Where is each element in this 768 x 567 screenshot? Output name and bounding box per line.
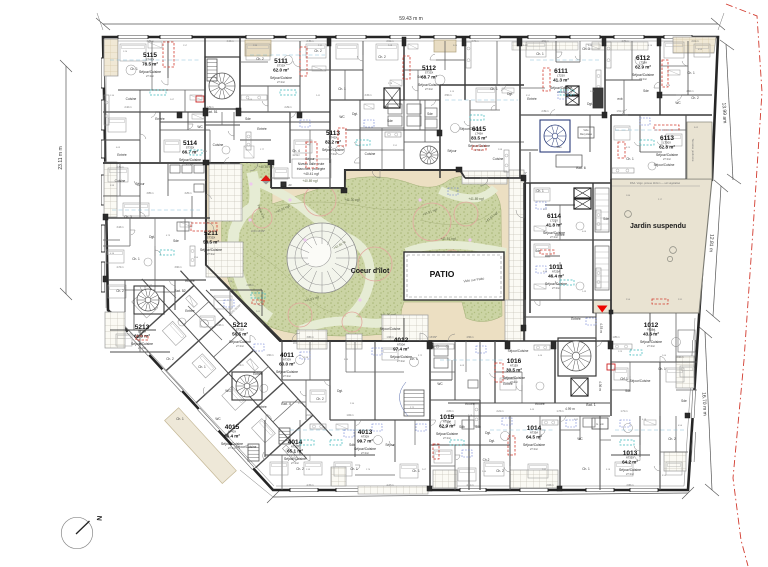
svg-text:Séjour: Séjour (447, 149, 457, 153)
svg-text:60.0 m²: 60.0 m² (279, 362, 295, 367)
svg-text:4.15 m: 4.15 m (306, 485, 313, 487)
svg-text:4.76 m: 4.76 m (621, 41, 628, 43)
svg-text:82.2 m²: 82.2 m² (325, 140, 341, 145)
svg-text:2.21 m: 2.21 m (496, 411, 503, 413)
svg-text:1.68 m: 1.68 m (216, 325, 223, 327)
svg-text:Sas: Sas (556, 145, 562, 149)
svg-text:Séjour: Séjour (385, 443, 395, 447)
svg-text:27.3m²: 27.3m² (207, 252, 215, 256)
svg-text:Séjour/Cuisine: Séjour/Cuisine (354, 447, 376, 451)
svg-text:30.5 m²: 30.5 m² (506, 368, 522, 373)
svg-text:Sdb: Sdb (475, 425, 481, 429)
svg-text:41.8 m²: 41.8 m² (546, 223, 562, 228)
svg-text:2.29 m: 2.29 m (284, 107, 291, 109)
svg-text:Ch. 1: Ch. 1 (658, 367, 666, 371)
svg-text:Sde: Sde (173, 239, 179, 243)
svg-text:Ch. 1: Ch. 1 (582, 467, 590, 471)
svg-text:Vide: Vide (583, 128, 589, 132)
svg-text:Entrée: Entrée (527, 97, 537, 101)
svg-text:2.05 m: 2.05 m (446, 411, 453, 413)
svg-text:Entrée: Entrée (155, 117, 165, 121)
svg-text:62.9 m²: 62.9 m² (439, 424, 455, 429)
svg-text:4.56 m: 4.56 m (466, 337, 473, 339)
svg-text:59.43 m m: 59.43 m m (399, 16, 423, 22)
svg-text:WC: WC (215, 417, 221, 421)
svg-text:Ch. 1: Ch. 1 (626, 157, 634, 161)
svg-text:27.3m²: 27.3m² (663, 157, 671, 161)
svg-text:3.60 m: 3.60 m (174, 267, 181, 269)
svg-text:Bat. 6: Bat. 6 (576, 166, 585, 170)
svg-text:Séjour/Cuisine: Séjour/Cuisine (656, 153, 678, 157)
svg-text:+41.51 ngf: +41.51 ngf (440, 237, 455, 241)
svg-text:Séjour/Cuisine: Séjour/Cuisine (640, 340, 662, 344)
svg-text:Dgt.: Dgt. (383, 105, 389, 109)
svg-text:46.4 m²: 46.4 m² (548, 274, 564, 279)
svg-text:Ch. 1: Ch. 1 (536, 189, 544, 193)
svg-text:Ch. 1: Ch. 1 (410, 357, 418, 361)
svg-text:86.4 m²: 86.4 m² (224, 434, 240, 439)
svg-text:WC: WC (339, 115, 345, 119)
svg-text:2.74 m: 2.74 m (236, 365, 243, 367)
svg-text:Séjour/Cuisine: Séjour/Cuisine (508, 349, 529, 353)
svg-text:3.80 m: 3.80 m (306, 337, 313, 339)
svg-text:+40.89 ngf: +40.89 ngf (302, 179, 317, 183)
svg-text:27.3m²: 27.3m² (138, 346, 146, 350)
svg-text:Dgt.: Dgt. (489, 439, 495, 443)
svg-text:Ch. 1: Ch. 1 (490, 87, 498, 91)
svg-text:Entrée: Entrée (257, 127, 267, 131)
svg-text:+41.89 ngf: +41.89 ngf (468, 197, 483, 201)
svg-text:Cuisine: Cuisine (213, 143, 224, 147)
svg-text:4.44 m: 4.44 m (226, 41, 233, 43)
svg-text:Séjour/Cuisine: Séjour/Cuisine (460, 127, 481, 131)
svg-text:3.50 m: 3.50 m (444, 95, 451, 97)
svg-text:1.50 m: 1.50 m (266, 355, 273, 357)
svg-text:2.45 m: 2.45 m (306, 41, 313, 43)
svg-text:Jardin suspendu: Jardin suspendu (630, 223, 686, 230)
svg-text:1.84 m: 1.84 m (346, 415, 353, 417)
svg-text:Dgt.: Dgt. (507, 92, 513, 96)
svg-text:2.10 m: 2.10 m (124, 107, 131, 109)
svg-text:64.2 m²: 64.2 m² (622, 460, 638, 465)
svg-text:Dgt.: Dgt. (149, 235, 155, 239)
svg-text:Séjour/Cuisine: Séjour/Cuisine (270, 76, 292, 80)
svg-text:Ch. 2: Ch. 2 (691, 96, 699, 100)
svg-text:3.43 m: 3.43 m (116, 227, 123, 229)
svg-text:Sde: Sde (643, 89, 649, 93)
svg-text:Bat. 1: Bat. 1 (586, 403, 595, 407)
svg-text:WC: WC (437, 382, 443, 386)
svg-text:1.85 m: 1.85 m (612, 337, 619, 339)
svg-text:Séjour/Cuisine: Séjour/Cuisine (200, 248, 222, 252)
svg-text:Sde: Sde (625, 389, 631, 393)
svg-text:Séjour/Cuisine: Séjour/Cuisine (131, 342, 153, 346)
svg-text:1.73 m: 1.73 m (556, 411, 563, 413)
svg-text:evb: evb (617, 97, 622, 101)
svg-text:Bat. 52: Bat. 52 (174, 289, 185, 293)
svg-text:Ch. 2: Ch. 2 (378, 55, 386, 59)
svg-text:27.3m²: 27.3m² (361, 451, 369, 455)
svg-text:4.21 m: 4.21 m (466, 485, 473, 487)
svg-text:Cuisine: Cuisine (126, 97, 137, 101)
svg-text:16.70 m m: 16.70 m m (700, 392, 707, 416)
svg-text:27.3m²: 27.3m² (530, 447, 538, 451)
svg-text:Séjour/Cuisine: Séjour/Cuisine (436, 432, 458, 436)
svg-text:Terrasse jardinière: Terrasse jardinière (691, 138, 695, 161)
svg-text:Ch. 1: Ch. 1 (338, 87, 346, 91)
svg-text:Sdb: Sdb (459, 425, 465, 429)
svg-text:RSA. Végé. prévue 110cm — sol: RSA. Végé. prévue 110cm — sol végétalisé (630, 181, 681, 185)
svg-text:27.3m²: 27.3m² (329, 152, 337, 156)
svg-text:Séjour/Cuisine: Séjour/Cuisine (523, 443, 545, 447)
svg-text:Ch. 3: Ch. 3 (124, 215, 132, 219)
svg-text:Séjour/Cuisine: Séjour/Cuisine (236, 445, 257, 449)
svg-text:62.0 m²: 62.0 m² (273, 68, 289, 73)
svg-text:Recyclerie: Recyclerie (580, 132, 593, 136)
svg-text:étanchée, protégée: étanchée, protégée (297, 167, 326, 171)
svg-text:68.7 m²: 68.7 m² (421, 75, 437, 80)
svg-text:JON 16'09*: JON 16'09* (251, 229, 266, 233)
svg-text:Ch. 1: Ch. 1 (132, 257, 140, 261)
svg-text:Entrée: Entrée (571, 317, 581, 321)
svg-text:WC: WC (197, 125, 203, 129)
svg-text:Séjour/Cuisine: Séjour/Cuisine (380, 327, 401, 331)
svg-text:Ch.2: Ch.2 (483, 458, 490, 462)
svg-text:Entrée: Entrée (253, 372, 263, 376)
svg-text:Sde: Sde (387, 119, 393, 123)
svg-text:N: N (95, 515, 102, 521)
svg-text:Ch. 2: Ch. 2 (316, 397, 324, 401)
svg-text:Dgt.: Dgt. (337, 389, 343, 393)
svg-text:Entrée: Entrée (555, 233, 565, 237)
svg-text:43.6 m²: 43.6 m² (643, 332, 659, 337)
svg-text:2.86 m: 2.86 m (626, 485, 633, 487)
svg-text:4.99 m: 4.99 m (565, 407, 575, 411)
svg-text:PATIO: PATIO (430, 269, 455, 279)
svg-text:64.5 m²: 64.5 m² (526, 435, 542, 440)
svg-text:4.47 m: 4.47 m (386, 485, 393, 487)
svg-text:Cuisine: Cuisine (365, 152, 376, 156)
svg-text:12.81 m: 12.81 m (708, 234, 715, 252)
svg-text:WC: WC (225, 389, 231, 393)
svg-text:3.15 m: 3.15 m (364, 95, 371, 97)
svg-text:13.99 am: 13.99 am (720, 102, 727, 123)
svg-text:4.53 m: 4.53 m (599, 323, 603, 333)
svg-text:Dgt.: Dgt. (587, 102, 593, 106)
svg-text:2.72 m: 2.72 m (471, 41, 478, 43)
svg-text:1.71 m: 1.71 m (620, 411, 627, 413)
svg-text:Entrée: Entrée (257, 405, 267, 409)
svg-text:2.76 m: 2.76 m (116, 167, 123, 169)
svg-text:Dgt.: Dgt. (352, 112, 358, 116)
svg-text:27.3m²: 27.3m² (639, 77, 647, 81)
svg-text:Dgt.: Dgt. (485, 431, 491, 435)
svg-text:Ch. 1: Ch. 1 (687, 71, 695, 75)
svg-text:+41.30 ngf: +41.30 ngf (344, 198, 359, 202)
svg-text:Ch. 4: Ch. 4 (292, 149, 300, 153)
svg-text:Sde: Sde (603, 217, 609, 221)
svg-text:Séjour/Cuisine: Séjour/Cuisine (284, 457, 306, 461)
svg-text:41.3 m²: 41.3 m² (553, 78, 569, 83)
svg-text:Ch. 1: Ch. 1 (176, 417, 184, 421)
svg-text:3.25 m: 3.25 m (184, 193, 191, 195)
svg-text:4.51 m: 4.51 m (541, 41, 548, 43)
svg-text:23.11 m m: 23.11 m m (58, 146, 64, 169)
svg-text:Séjour/Cuisine: Séjour/Cuisine (139, 70, 161, 74)
svg-text:Ch. 2: Ch. 2 (166, 357, 174, 361)
svg-text:27.3m²: 27.3m² (647, 344, 655, 348)
svg-text:Bat. 4: Bat. 4 (281, 402, 290, 406)
svg-text:Niveau dalle brute: Niveau dalle brute (298, 162, 325, 166)
svg-text:Ch. 1: Ch. 1 (350, 467, 358, 471)
svg-text:2.92 m: 2.92 m (686, 91, 693, 93)
svg-text:Séjour/Cuisine: Séjour/Cuisine (632, 73, 654, 77)
svg-text:Séjour/Cuisine: Séjour/Cuisine (229, 340, 251, 344)
svg-text:Séjour/Cuisine: Séjour/Cuisine (468, 144, 490, 148)
svg-text:Ch. 1: Ch. 1 (198, 365, 206, 369)
svg-text:83.5 m²: 83.5 m² (471, 136, 487, 141)
svg-text:Séjour/Cuisine: Séjour/Cuisine (276, 370, 298, 374)
svg-text:Séjour: Séjour (305, 157, 315, 161)
svg-text:Coeur d'îlot: Coeur d'îlot (351, 268, 390, 275)
svg-text:3.85 m: 3.85 m (146, 193, 153, 195)
svg-text:Sde: Sde (427, 112, 433, 116)
svg-text:27.3m²: 27.3m² (626, 472, 634, 476)
svg-text:2.01 m: 2.01 m (306, 415, 313, 417)
svg-text:Entrée: Entrée (185, 279, 195, 283)
svg-text:27.3m²: 27.3m² (443, 436, 451, 440)
svg-text:Séjour/Cuisine: Séjour/Cuisine (545, 282, 567, 286)
svg-text:1.51 m: 1.51 m (616, 111, 623, 113)
svg-text:Sde: Sde (681, 399, 687, 403)
svg-text:65.1 m²: 65.1 m² (287, 449, 303, 454)
svg-text:Ch. 2: Ch. 2 (116, 289, 124, 293)
svg-text:Entrée: Entrée (465, 402, 475, 406)
svg-text:Séjour/Cuisine: Séjour/Cuisine (179, 158, 201, 162)
svg-text:Séjour/Cuisine: Séjour/Cuisine (550, 86, 572, 90)
svg-text:Ch. 2: Ch. 2 (256, 57, 264, 61)
svg-text:62.8 m²: 62.8 m² (659, 145, 675, 150)
svg-text:Séjour/Cuisine: Séjour/Cuisine (322, 148, 344, 152)
svg-text:Ch. 2: Ch. 2 (668, 437, 676, 441)
svg-text:Ch. 1: Ch. 1 (412, 469, 420, 473)
svg-text:Ch. 1: Ch. 1 (620, 377, 628, 381)
svg-text:+40.41 ngf: +40.41 ngf (303, 172, 319, 176)
svg-text:Séjour/Cuisine: Séjour/Cuisine (390, 355, 412, 359)
svg-text:Séjour/Cuisine: Séjour/Cuisine (503, 376, 525, 380)
svg-text:Entrée: Entrée (535, 402, 545, 406)
svg-text:Entrée: Entrée (503, 382, 513, 386)
svg-text:WC: WC (577, 437, 583, 441)
svg-text:78.5 m²: 78.5 m² (142, 62, 158, 67)
svg-text:Ch. 2: Ch. 2 (314, 49, 322, 53)
svg-text:4.29 m: 4.29 m (146, 41, 153, 43)
svg-text:Sde: Sde (245, 117, 251, 121)
svg-text:27.3m²: 27.3m² (425, 87, 433, 91)
svg-text:27.3m²: 27.3m² (283, 374, 291, 378)
svg-text:Ch. 1: Ch. 1 (536, 52, 544, 56)
svg-text:3.66 m: 3.66 m (676, 357, 683, 359)
svg-text:Cuisine: Cuisine (493, 157, 504, 161)
svg-text:Séjour: Séjour (135, 182, 145, 186)
svg-text:Séjour/Cuisine: Séjour/Cuisine (418, 83, 440, 87)
svg-text:Ch. 1: Ch. 1 (130, 67, 138, 71)
svg-text:Entrée: Entrée (117, 153, 127, 157)
svg-text:2.01 m: 2.01 m (691, 41, 698, 43)
svg-text:Ch. 2: Ch. 2 (296, 467, 304, 471)
svg-text:1.68 m: 1.68 m (386, 337, 393, 339)
svg-text:27.3m²: 27.3m² (186, 162, 194, 166)
svg-text:27.3m²: 27.3m² (146, 74, 154, 78)
svg-text:Séjour/Cuisine: Séjour/Cuisine (630, 379, 651, 383)
svg-text:97.4 m²: 97.4 m² (393, 347, 409, 352)
svg-text:Ch. 3: Ch. 3 (582, 47, 590, 51)
svg-text:Séjour/Cuisine: Séjour/Cuisine (654, 163, 675, 167)
svg-text:Sde: Sde (417, 75, 423, 79)
svg-text:4.74 m: 4.74 m (116, 267, 123, 269)
svg-text:27.3m²: 27.3m² (552, 286, 560, 290)
svg-text:27.3m²: 27.3m² (397, 359, 405, 363)
svg-text:62.9 m²: 62.9 m² (635, 65, 651, 70)
svg-text:Ch. 2: Ch. 2 (496, 469, 504, 473)
svg-text:Cuisine: Cuisine (115, 179, 126, 183)
svg-text:58.5 m²: 58.5 m² (203, 240, 219, 245)
svg-text:27.3m²: 27.3m² (291, 461, 299, 465)
svg-text:WC: WC (675, 101, 681, 105)
svg-text:2.39 m: 2.39 m (541, 111, 548, 113)
svg-text:Sdb: Sdb (349, 443, 355, 447)
svg-text:99.7 m²: 99.7 m² (357, 439, 373, 444)
svg-text:4.36 m: 4.36 m (598, 381, 602, 391)
svg-text:2.91 m: 2.91 m (386, 41, 393, 43)
svg-text:Séjour/Cuisine: Séjour/Cuisine (619, 468, 641, 472)
svg-text:2.66 m: 2.66 m (246, 285, 253, 287)
svg-text:27.3m²: 27.3m² (236, 344, 244, 348)
svg-text:Entrée: Entrée (185, 309, 195, 313)
svg-text:2.83 m: 2.83 m (546, 485, 553, 487)
svg-text:11.5m²: 11.5m² (292, 154, 299, 157)
svg-text:27.3m²: 27.3m² (277, 80, 285, 84)
svg-text:56.5 m²: 56.5 m² (232, 332, 248, 337)
